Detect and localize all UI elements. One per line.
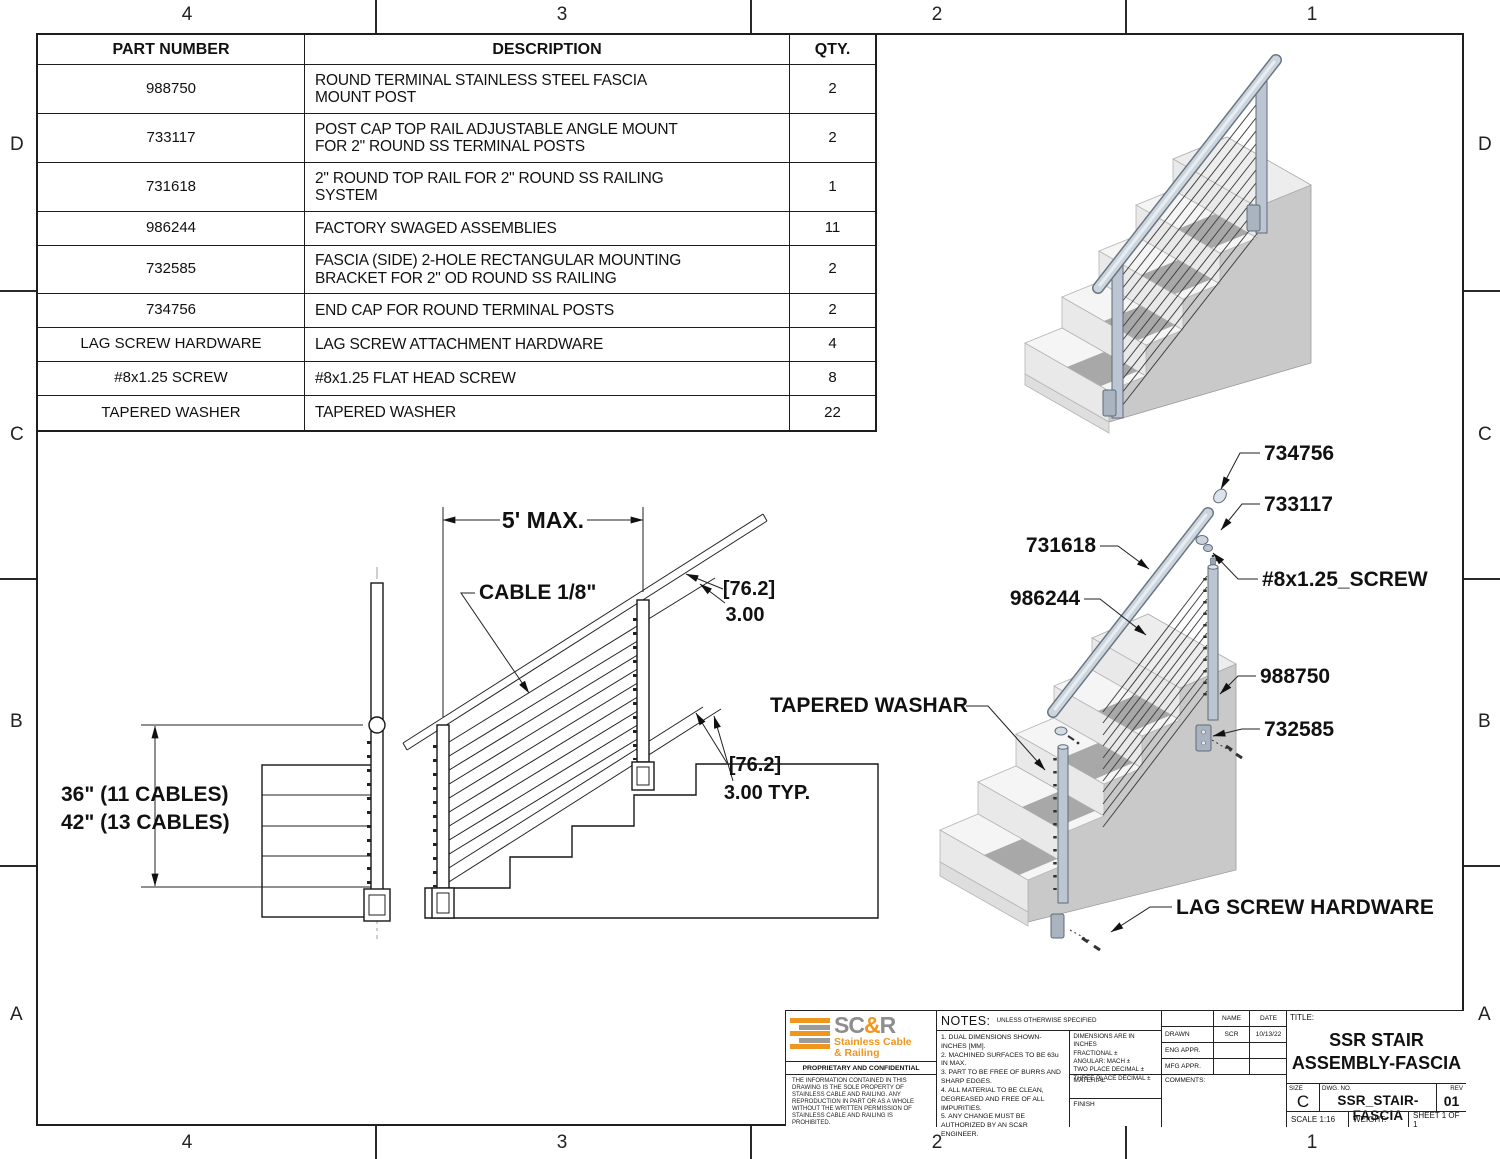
zone-tick xyxy=(0,290,36,292)
callout-screw: #8x1.25_SCREW xyxy=(1262,568,1428,591)
note-1: 1. DUAL DIMENSIONS SHOWN- INCHES [MM]. xyxy=(941,1034,1065,1052)
fascia-bracket-side xyxy=(364,889,390,921)
col-header-description: DESCRIPTION xyxy=(305,35,790,65)
tolerance-line: ANGULAR: MACH ± xyxy=(1073,1058,1158,1066)
lag-screw xyxy=(1082,938,1088,942)
cell-part: 986244 xyxy=(38,212,305,246)
brand-sc: SC xyxy=(834,1012,864,1038)
cell-part: LAG SCREW HARDWARE xyxy=(38,328,305,362)
zone-tick xyxy=(1464,290,1500,292)
notes-title: NOTES: xyxy=(941,1014,991,1028)
cell-qty: 1 xyxy=(790,163,875,212)
zone-label-bottom-3: 3 xyxy=(557,1132,568,1154)
zone-label-left-B: B xyxy=(10,711,23,733)
col-header-qty: QTY. xyxy=(790,35,875,65)
cell-part: 731618 xyxy=(38,163,305,212)
zone-label-bottom-4: 4 xyxy=(182,1132,193,1154)
callout-tapered-washer: TAPERED WASHAR xyxy=(770,694,968,717)
cell-description: ROUND TERMINAL STAINLESS STEEL FASCIA MO… xyxy=(305,65,790,114)
zone-tick xyxy=(1464,578,1500,580)
cell-description: END CAP FOR ROUND TERMINAL POSTS xyxy=(305,294,790,328)
cell-description: FASCIA (SIDE) 2-HOLE RECTANGULAR MOUNTIN… xyxy=(305,246,790,294)
title-line1: SSR STAIR xyxy=(1287,1029,1466,1052)
drawn-name: SCR xyxy=(1214,1027,1250,1043)
weight-field: WEIGHT: xyxy=(1349,1112,1409,1127)
sheet-field: SHEET 1 OF 1 xyxy=(1409,1112,1466,1127)
lag-screw xyxy=(1236,754,1242,758)
scr-logo-icon xyxy=(790,1018,830,1054)
zone-tick xyxy=(375,0,377,33)
zone-label-top-4: 4 xyxy=(182,4,193,26)
terminal-post-side xyxy=(371,583,383,903)
height-dim-36: 36" (11 CABLES) xyxy=(61,783,229,806)
zone-label-right-C: C xyxy=(1478,424,1492,446)
col-header-part: PART NUMBER xyxy=(38,35,305,65)
size-value: C xyxy=(1287,1092,1319,1112)
tolerance-line: TWO PLACE DECIMAL ± xyxy=(1073,1066,1158,1074)
note-5: 5. ANY CHANGE MUST BE AUTHORIZED BY AN S… xyxy=(941,1113,1065,1139)
notes-subtitle: UNLESS OTHERWISE SPECIFIED xyxy=(997,1017,1097,1024)
zone-label-top-2: 2 xyxy=(932,4,943,26)
callout-top-rail: 731618 xyxy=(1026,534,1096,557)
callout-post-cap: 733117 xyxy=(1264,493,1333,516)
adjustable-angle-mount xyxy=(1196,536,1218,562)
zone-label-right-B: B xyxy=(1478,711,1491,733)
lag-screw xyxy=(1094,946,1100,950)
tolerance-line: FRACTIONAL ± xyxy=(1073,1050,1158,1058)
cell-qty: 8 xyxy=(790,362,875,396)
zone-tick xyxy=(1125,1126,1127,1159)
drawing-title: SSR STAIR ASSEMBLY-FASCIA xyxy=(1287,1029,1466,1074)
end-cap xyxy=(1211,487,1229,506)
zone-tick xyxy=(0,865,36,867)
cell-description: 2" ROUND TOP RAIL FOR 2" ROUND SS RAILIN… xyxy=(305,163,790,212)
rev-value: 01 xyxy=(1437,1093,1466,1109)
eng-appr-label: ENG APPR. xyxy=(1162,1043,1214,1059)
cell-description: #8x1.25 FLAT HEAD SCREW xyxy=(305,362,790,396)
cell-description: TAPERED WASHER xyxy=(305,396,790,430)
title-block: SC&R Stainless Cable & Railing PROPRIETA… xyxy=(785,1010,1464,1126)
cell-qty: 22 xyxy=(790,396,875,430)
drawing-sheet: 4 3 2 1 4 3 2 1 D C B A D C B A PART NUM… xyxy=(0,0,1500,1159)
dwg-no-label: DWG. NO. xyxy=(1322,1085,1352,1092)
zone-label-bottom-1: 1 xyxy=(1307,1132,1318,1154)
title-section: TITLE: SSR STAIR ASSEMBLY-FASCIA SIZE C … xyxy=(1286,1011,1465,1127)
zone-tick xyxy=(750,0,752,33)
callout-bracket: 732585 xyxy=(1264,718,1334,741)
proprietary-title: PROPRIETARY AND CONFIDENTIAL xyxy=(786,1061,936,1075)
parts-table: PART NUMBER DESCRIPTION QTY. 988750 ROUN… xyxy=(36,33,877,432)
approvals-section: NAME DATE DRAWN SCR 10/13/22 ENG APPR. M… xyxy=(1161,1011,1286,1127)
zone-tick xyxy=(0,578,36,580)
logo-section: SC&R Stainless Cable & Railing PROPRIETA… xyxy=(786,1011,936,1127)
cell-qty: 11 xyxy=(790,212,875,246)
height-dim-42: 42" (13 CABLES) xyxy=(61,811,230,834)
notes-list: 1. DUAL DIMENSIONS SHOWN- INCHES [MM]. 2… xyxy=(937,1031,1069,1127)
zone-label-right-A: A xyxy=(1478,1004,1491,1026)
tolerances: DIMENSIONS ARE IN INCHES FRACTIONAL ± AN… xyxy=(1070,1031,1161,1075)
isometric-assembly-view-svg xyxy=(930,45,1400,445)
proprietary-text: THE INFORMATION CONTAINED IN THIS DRAWIN… xyxy=(786,1075,936,1127)
cell-part: 734756 xyxy=(38,294,305,328)
post-side-view xyxy=(262,567,390,939)
span-dimension: 5' MAX. xyxy=(443,507,643,717)
cell-qty: 2 xyxy=(790,294,875,328)
zone-tick xyxy=(375,1126,377,1159)
upper-bracket xyxy=(632,762,654,790)
zone-label-left-A: A xyxy=(10,1004,23,1026)
brand-r: R xyxy=(880,1012,896,1038)
cell-part: 732585 xyxy=(38,246,305,294)
title-label: TITLE: xyxy=(1290,1013,1314,1022)
upper-post xyxy=(632,600,654,790)
drawn-label: DRAWN xyxy=(1162,1027,1214,1043)
callout-end-cap: 734756 xyxy=(1264,442,1334,465)
cable-callout: CABLE 1/8" xyxy=(461,581,596,693)
note-4: 4. ALL MATERIAL TO BE CLEAN, DEGREASED A… xyxy=(941,1087,1065,1113)
cell-part: 988750 xyxy=(38,65,305,114)
cell-qty: 2 xyxy=(790,246,875,294)
callout-swaged-assembly: 986244 xyxy=(1010,587,1080,610)
fascia-bracket xyxy=(1051,914,1064,938)
exploded-view-svg: 734756 733117 #8x1.25_SCREW 731618 98624… xyxy=(740,440,1460,1010)
cell-qty: 2 xyxy=(790,114,875,163)
scale-field: SCALE 1:16 xyxy=(1287,1112,1349,1127)
cell-description: POST CAP TOP RAIL ADJUSTABLE ANGLE MOUNT… xyxy=(305,114,790,163)
zone-tick xyxy=(1125,0,1127,33)
rev-label: REV xyxy=(1450,1085,1463,1092)
comments-label: COMMENTS: xyxy=(1162,1075,1287,1127)
cable-label: CABLE 1/8" xyxy=(479,581,596,604)
fascia-bracket xyxy=(1247,205,1260,231)
callout-lag-screw-hardware: LAG SCREW HARDWARE xyxy=(1176,896,1434,919)
notes-section: NOTES: UNLESS OTHERWISE SPECIFIED 1. DUA… xyxy=(936,1011,1161,1127)
tolerance-line: DIMENSIONS ARE IN INCHES xyxy=(1073,1033,1158,1050)
lower-post xyxy=(432,725,454,918)
size-label: SIZE xyxy=(1289,1085,1303,1092)
cell-qty: 2 xyxy=(790,65,875,114)
cell-description: LAG SCREW ATTACHMENT HARDWARE xyxy=(305,328,790,362)
note-2: 2. MACHINED SURFACES TO BE 63u IN MAX. xyxy=(941,1052,1065,1070)
note-3: 3. PART TO BE FREE OF BURRS AND SHARP ED… xyxy=(941,1069,1065,1087)
brand-amp: & xyxy=(864,1012,880,1038)
zone-label-left-D: D xyxy=(10,134,24,156)
cell-qty: 4 xyxy=(790,328,875,362)
company-logo: SC&R Stainless Cable & Railing xyxy=(786,1011,936,1061)
mfg-appr-label: MFG APPR. xyxy=(1162,1059,1214,1075)
name-header: NAME xyxy=(1214,1011,1250,1027)
zone-label-right-D: D xyxy=(1478,134,1492,156)
stairs-isometric xyxy=(1025,137,1311,433)
zone-label-left-C: C xyxy=(10,424,24,446)
cell-part: #8x1.25 SCREW xyxy=(38,362,305,396)
fascia-bracket xyxy=(1103,390,1116,416)
zone-tick xyxy=(1464,865,1500,867)
cell-part: 733117 xyxy=(38,114,305,163)
drawn-date: 10/13/22 xyxy=(1250,1027,1287,1043)
cell-part: TAPERED WASHER xyxy=(38,396,305,430)
date-header: DATE xyxy=(1250,1011,1287,1027)
finish-field: FINISH xyxy=(1070,1099,1161,1126)
zone-label-top-3: 3 xyxy=(557,4,568,26)
span-dim-text: 5' MAX. xyxy=(502,507,584,533)
brand-text: SC&R Stainless Cable & Railing xyxy=(834,1014,912,1058)
brand-line1: Stainless Cable xyxy=(834,1037,912,1048)
zone-label-top-1: 1 xyxy=(1307,4,1318,26)
zone-tick xyxy=(750,1126,752,1159)
brand-line2: & Railing xyxy=(834,1048,912,1059)
cell-description: FACTORY SWAGED ASSEMBLIES xyxy=(305,212,790,246)
callout-post: 988750 xyxy=(1260,665,1330,688)
fascia-board-stack xyxy=(262,765,372,917)
title-line2: ASSEMBLY-FASCIA xyxy=(1287,1052,1466,1075)
rail-end-section xyxy=(369,717,385,733)
